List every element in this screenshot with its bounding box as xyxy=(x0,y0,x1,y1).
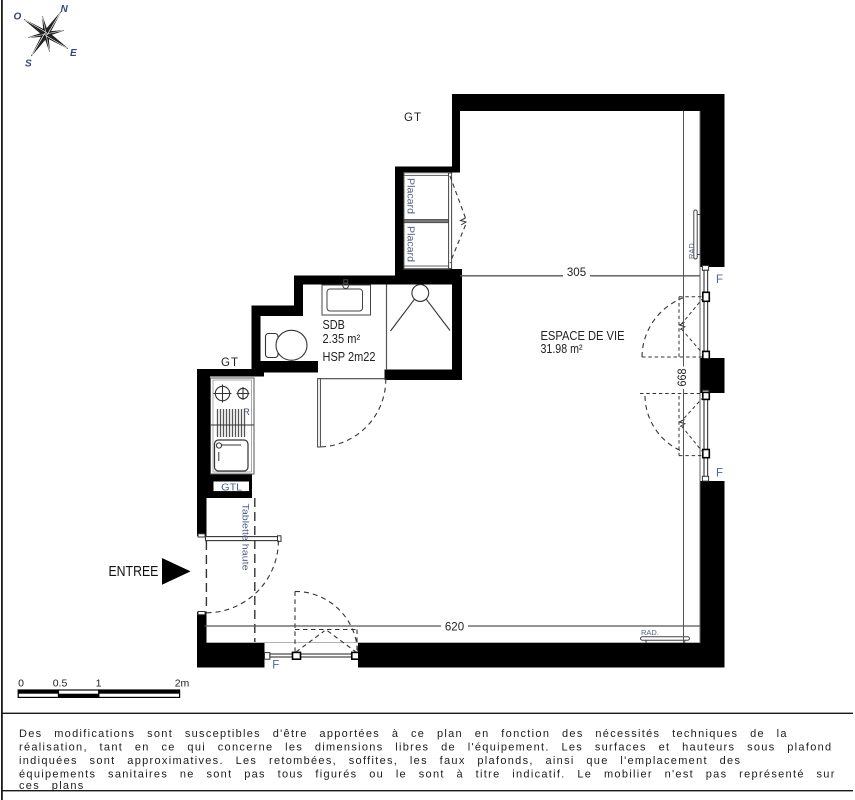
svg-text:O: O xyxy=(14,12,22,23)
svg-text:Des modifications sont suscept: Des modifications sont susceptibles d'êt… xyxy=(19,728,788,740)
svg-text:0: 0 xyxy=(18,678,24,690)
svg-text:1: 1 xyxy=(96,678,102,690)
svg-text:2.35 m²: 2.35 m² xyxy=(323,332,361,346)
svg-text:2m: 2m xyxy=(175,678,190,690)
svg-text:équipements sanitaires ne sont: équipements sanitaires ne sont pas tous … xyxy=(19,769,836,781)
svg-text:620: 620 xyxy=(445,622,464,634)
svg-text:Tablette haute: Tablette haute xyxy=(241,504,251,571)
svg-text:SDB: SDB xyxy=(323,318,345,332)
svg-text:Placard: Placard xyxy=(405,226,417,262)
svg-text:ENTREE: ENTREE xyxy=(109,563,159,579)
svg-text:0.5: 0.5 xyxy=(53,678,68,690)
svg-text:RAD.: RAD. xyxy=(641,628,659,637)
svg-text:réalisation, tant en ce qui co: réalisation, tant en ce qui concerne les… xyxy=(19,742,832,754)
svg-text:ces plans: ces plans xyxy=(19,780,85,792)
svg-text:ESPACE DE VIE: ESPACE DE VIE xyxy=(541,329,625,343)
svg-text:N: N xyxy=(61,4,69,15)
svg-text:RAD.: RAD. xyxy=(687,241,696,259)
svg-text:Placard: Placard xyxy=(405,178,417,214)
svg-text:S: S xyxy=(25,59,32,70)
svg-text:668: 668 xyxy=(677,369,689,387)
svg-text:indiquées sont approximatives.: indiquées sont approximatives. Les retom… xyxy=(19,755,741,767)
svg-text:F: F xyxy=(716,274,723,286)
svg-text:F: F xyxy=(716,468,723,480)
svg-text:31.98 m²: 31.98 m² xyxy=(541,342,583,356)
svg-text:GT: GT xyxy=(221,357,239,369)
svg-text:GTL: GTL xyxy=(221,481,242,493)
svg-text:F: F xyxy=(272,660,279,672)
svg-text:GT: GT xyxy=(404,112,422,124)
svg-text:E: E xyxy=(70,48,77,59)
svg-text:305: 305 xyxy=(567,267,586,279)
svg-text:HSP 2m22: HSP 2m22 xyxy=(323,350,376,364)
